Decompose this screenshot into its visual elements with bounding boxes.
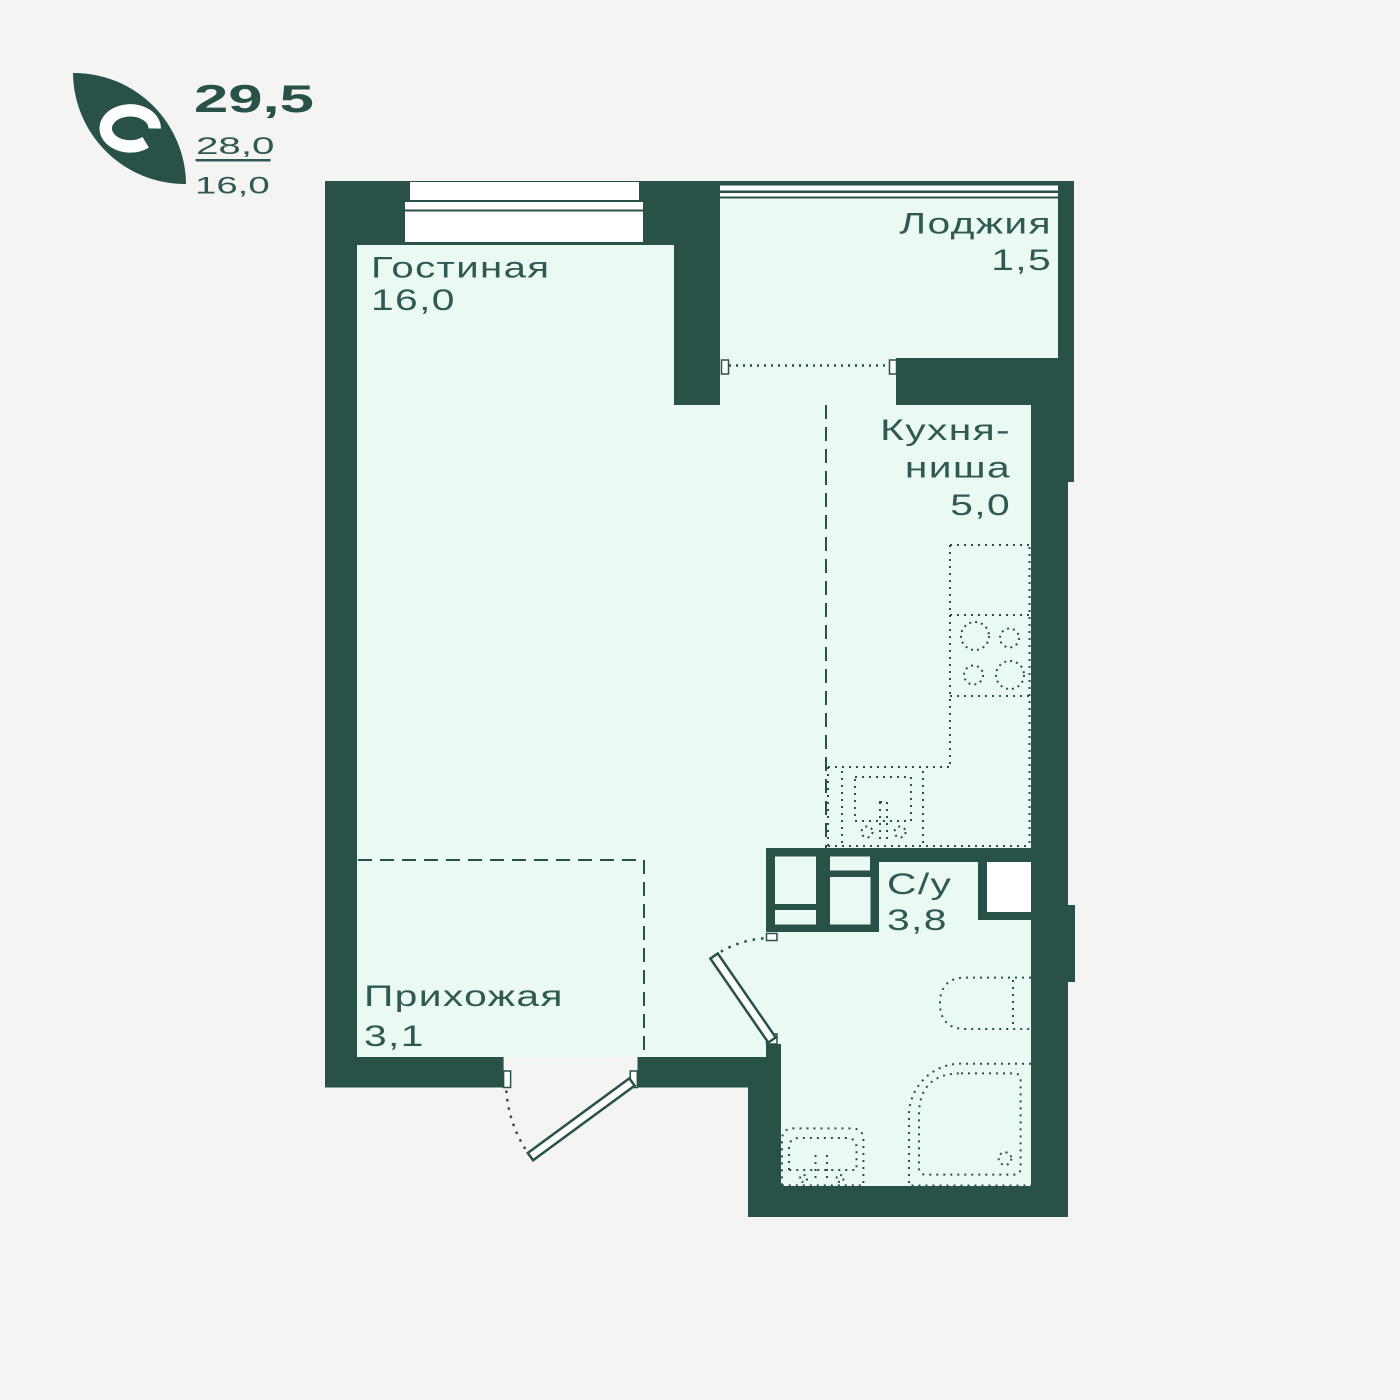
svg-text:Кухня-: Кухня- (880, 413, 1011, 447)
svg-text:ниша: ниша (905, 451, 1011, 485)
svg-text:16,0: 16,0 (195, 172, 270, 199)
svg-text:Гостиная: Гостиная (371, 250, 550, 284)
svg-text:3,1: 3,1 (364, 1019, 425, 1053)
svg-text:28,0: 28,0 (196, 133, 274, 160)
svg-text:1,5: 1,5 (991, 243, 1052, 277)
svg-text:Лоджия: Лоджия (899, 207, 1052, 241)
svg-text:29,5: 29,5 (194, 76, 314, 120)
svg-text:С/у: С/у (887, 867, 952, 901)
svg-text:5,0: 5,0 (950, 488, 1011, 522)
svg-text:Прихожая: Прихожая (364, 979, 564, 1013)
svg-text:3,8: 3,8 (887, 903, 948, 937)
svg-text:16,0: 16,0 (371, 283, 456, 317)
